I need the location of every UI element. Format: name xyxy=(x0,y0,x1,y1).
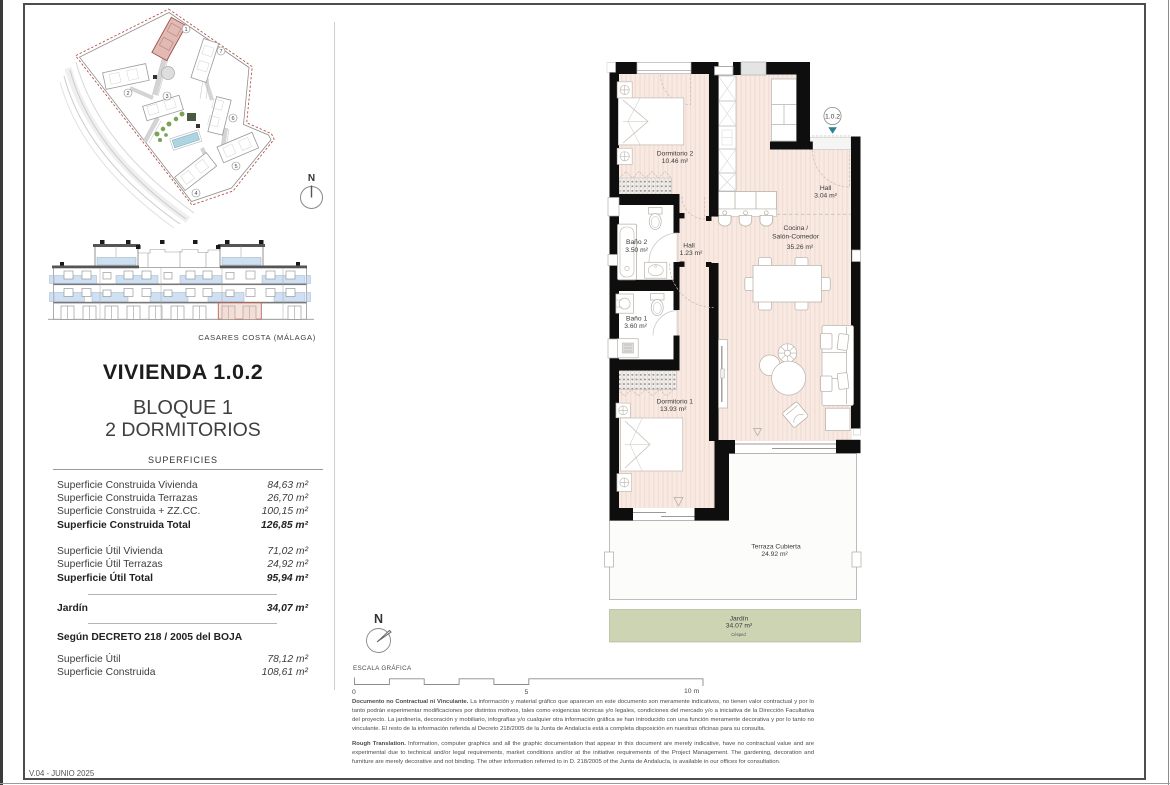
svg-text:Salón-Comedor: Salón-Comedor xyxy=(772,233,820,240)
svg-text:4: 4 xyxy=(194,191,197,197)
svg-text:1: 1 xyxy=(184,27,187,33)
svg-text:Baño 2: Baño 2 xyxy=(626,239,647,246)
svg-text:Terraza Cubierta: Terraza Cubierta xyxy=(751,544,801,551)
svg-text:Cocina /: Cocina / xyxy=(784,225,809,232)
svg-text:3.04 m²: 3.04 m² xyxy=(814,193,837,200)
svg-text:1.0.2: 1.0.2 xyxy=(825,114,840,121)
svg-text:Hall: Hall xyxy=(683,242,695,249)
svg-text:Dormitorio 1: Dormitorio 1 xyxy=(657,398,694,405)
svg-text:35.26 m²: 35.26 m² xyxy=(787,244,814,251)
svg-text:0: 0 xyxy=(352,689,356,696)
svg-text:7: 7 xyxy=(219,49,222,55)
svg-text:Dormitorio 2: Dormitorio 2 xyxy=(657,150,694,157)
svg-text:10 m: 10 m xyxy=(684,688,699,695)
svg-text:5: 5 xyxy=(525,689,529,696)
svg-text:5: 5 xyxy=(234,164,237,170)
svg-text:Césped: Césped xyxy=(731,632,746,637)
svg-text:Baño 1: Baño 1 xyxy=(626,315,647,322)
svg-text:3: 3 xyxy=(165,94,168,100)
svg-text:10.46 m²: 10.46 m² xyxy=(662,158,689,165)
svg-text:3.50 m²: 3.50 m² xyxy=(625,247,648,254)
svg-text:13.93 m²: 13.93 m² xyxy=(660,406,687,413)
svg-text:34.07 m²: 34.07 m² xyxy=(726,623,753,630)
svg-text:N: N xyxy=(374,612,383,626)
svg-text:2: 2 xyxy=(126,91,129,97)
svg-text:Jardín: Jardín xyxy=(730,616,749,623)
svg-text:3.60 m²: 3.60 m² xyxy=(624,323,647,330)
svg-text:1.23 m²: 1.23 m² xyxy=(680,250,703,257)
svg-text:Hall: Hall xyxy=(820,185,832,192)
svg-text:24.92 m²: 24.92 m² xyxy=(761,551,788,558)
svg-text:6: 6 xyxy=(231,116,234,122)
